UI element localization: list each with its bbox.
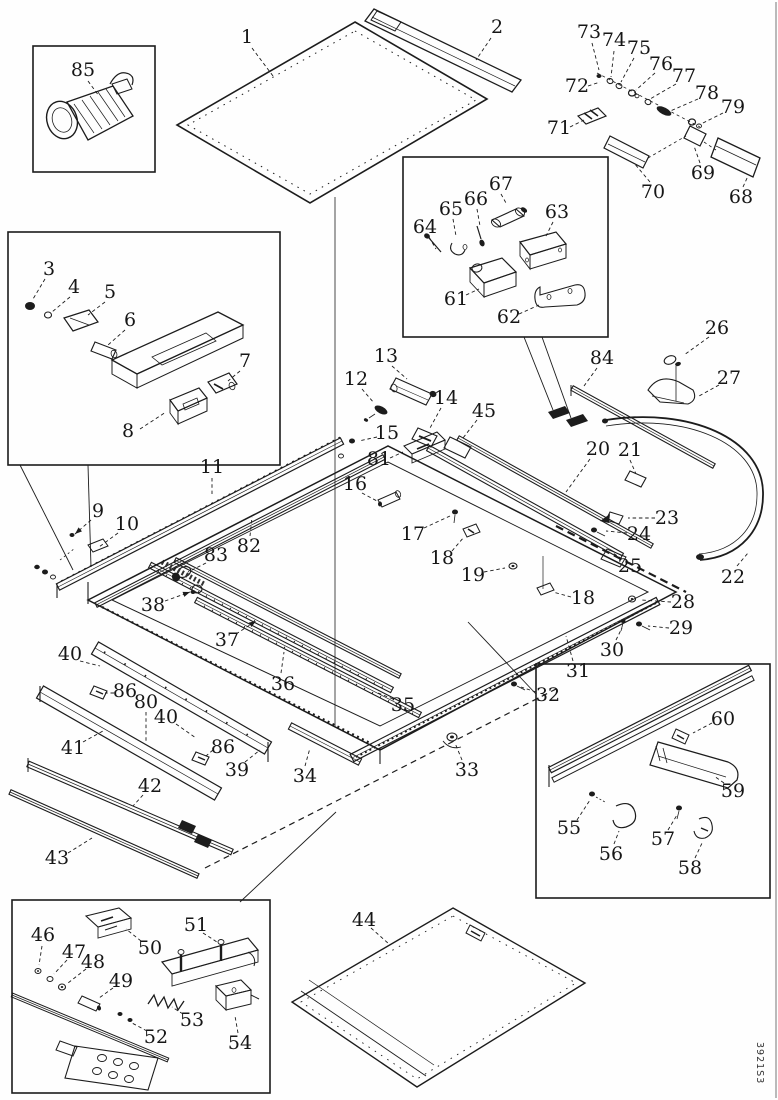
spring-12-line: [369, 414, 375, 418]
sunshade-band-1: [301, 991, 426, 1076]
cross-rail-a-midline: [428, 448, 622, 556]
leader-line-84: [584, 368, 597, 386]
part-label-28-44: 28: [671, 591, 695, 613]
part-label-3-15: 3: [43, 258, 55, 280]
deflector-blade-hatch: [656, 746, 667, 763]
part-label-27-51: 27: [717, 367, 741, 389]
washer-4: [45, 312, 52, 318]
spring-12: [373, 404, 389, 417]
part-label-6-18: 6: [124, 309, 136, 331]
clip-58-stripe: [701, 828, 708, 831]
bolt-57-line: [677, 811, 679, 819]
part-label-9-22: 9: [92, 500, 104, 522]
clip-86a-stripe: [96, 691, 103, 694]
part-label-55-76: 55: [557, 817, 581, 839]
sunshade-band-2: [309, 980, 434, 1065]
leader-line-69: [694, 146, 700, 163]
box-68: [711, 138, 760, 177]
fastener-link-2: [704, 142, 716, 150]
bolt-24-line: [597, 532, 605, 536]
bolt-57: [676, 806, 682, 811]
part-label-44-66: 44: [352, 909, 376, 931]
shade-track-36-midline: [196, 600, 420, 715]
cable-start-22: [602, 419, 608, 424]
part-label-16-61: 16: [343, 473, 367, 495]
cable-end-22: [696, 554, 704, 560]
washer-79b: [697, 124, 702, 128]
pin-66-shaft: [477, 226, 481, 239]
plate-62-hole2: [568, 289, 572, 294]
bracket-8-cap: [170, 400, 178, 424]
leader-line-60: [693, 723, 712, 733]
leader-line-29: [648, 626, 669, 628]
block-54-front: [226, 990, 251, 1010]
glass-panel-ticks: [188, 31, 476, 194]
screw-29: [636, 622, 642, 627]
part-label-42-36: 42: [138, 775, 162, 797]
leader-line-41: [83, 731, 103, 742]
leader-line-12: [362, 389, 374, 403]
leader-line-20: [566, 459, 590, 492]
part-label-26-50: 26: [705, 317, 729, 339]
part-label-7-19: 7: [239, 350, 251, 372]
bracket-8-front: [178, 398, 207, 424]
part-label-18-63: 18: [430, 547, 454, 569]
part-label-79-10: 79: [721, 96, 745, 118]
plate-hole-5: [109, 1072, 118, 1079]
part-label-83-25: 83: [204, 544, 228, 566]
clip-18a-stripe: [468, 529, 474, 533]
bracket-10: [88, 539, 108, 552]
bolt-9: [70, 533, 75, 537]
part-label-21-54: 21: [618, 439, 642, 461]
leader-line-45: [463, 420, 477, 438]
motor-hatch: [74, 89, 125, 133]
arm-51-roller1: [178, 950, 184, 955]
mount-clip-b: [566, 414, 588, 427]
spring-53: [148, 995, 184, 1010]
leader-line-78: [668, 99, 698, 112]
plate-62: [535, 285, 585, 308]
part-label-57-78: 57: [651, 828, 675, 850]
spring-12-tip: [363, 418, 368, 423]
sunshade-panel: [292, 908, 585, 1087]
plate-hole-4: [93, 1068, 102, 1075]
part-label-45-58: 45: [472, 400, 496, 422]
part-label-84-52: 84: [590, 347, 614, 369]
leader-line-43: [68, 838, 92, 853]
arm-51-roller2: [218, 940, 224, 945]
part-label-78-9: 78: [695, 82, 719, 104]
part-label-43-37: 43: [45, 847, 69, 869]
part-label-52-73: 52: [144, 1026, 168, 1048]
leader-line-71: [570, 120, 584, 127]
hook-56: [613, 804, 636, 828]
leader-line-19: [484, 568, 505, 572]
part-label-25-46: 25: [618, 555, 642, 577]
front-channel-34-midline: [290, 726, 360, 762]
clip-box-leader-2: [542, 337, 571, 418]
washer-19-dot: [512, 565, 515, 567]
deflector-box-leader: [468, 622, 536, 694]
part-label-13-55: 13: [374, 345, 398, 367]
rail-end-washer: [51, 575, 56, 579]
pin-49-tip: [96, 1005, 101, 1011]
leader-line-62: [519, 305, 539, 314]
washer-46-dot: [37, 970, 39, 972]
leader-line-79: [701, 113, 723, 124]
clip-65: [451, 243, 465, 255]
box-63-hole2: [559, 248, 562, 252]
part-label-14-57: 14: [434, 387, 458, 409]
leader-line-24: [606, 531, 627, 533]
leader-line-65: [453, 219, 456, 236]
tube-67-cap: [520, 206, 528, 214]
part-label-11-21: 11: [200, 456, 224, 478]
clip-58: [694, 817, 712, 838]
part-label-61-82: 61: [444, 288, 468, 310]
part-label-72-8: 72: [565, 75, 589, 97]
leader-line-75: [621, 58, 634, 82]
plate-hole-3: [130, 1063, 139, 1070]
part-label-68-14: 68: [729, 186, 753, 208]
part-label-58-79: 58: [678, 857, 702, 879]
motor-body: [67, 86, 133, 140]
part-label-48-69: 48: [81, 951, 105, 973]
part-label-12-56: 12: [344, 368, 368, 390]
rail-end-nut-b: [34, 565, 40, 569]
pin-66-head: [478, 239, 485, 247]
drip-rail-43-midline: [10, 792, 198, 876]
part-label-33-42: 33: [455, 759, 479, 781]
leader-line-18: [553, 592, 571, 597]
clip-60-stripe: [677, 735, 684, 739]
part-label-19-64: 19: [461, 564, 485, 586]
leader-line-54: [235, 1016, 238, 1033]
part-label-86-33: 86: [211, 736, 235, 758]
bracket-50-slot2: [105, 926, 117, 930]
part-label-85-2: 85: [71, 59, 95, 81]
part-label-5-17: 5: [104, 281, 116, 303]
leader-line-22: [737, 553, 748, 566]
part-label-15-59: 15: [375, 422, 399, 444]
bolt-55-dash: [596, 797, 605, 802]
part-label-65-86: 65: [439, 198, 463, 220]
part-label-73-3: 73: [577, 21, 601, 43]
bolt-32: [511, 682, 517, 687]
part-label-40-32: 40: [154, 706, 178, 728]
shade-track-38-midline: [175, 560, 400, 676]
block-54-side: [216, 986, 226, 1010]
guide-box-leader-1: [20, 465, 73, 570]
tube-67: [492, 209, 524, 227]
part-label-76-6: 76: [649, 53, 673, 75]
plate-hole-6: [125, 1076, 134, 1083]
part-label-75-5: 75: [627, 37, 651, 59]
leader-line-4: [52, 297, 70, 312]
leader-line-6: [108, 330, 125, 345]
box-63-side: [520, 242, 530, 269]
bracket-81-slot: [417, 444, 429, 449]
part-label-37-27: 37: [215, 629, 239, 651]
leader-line-34: [305, 748, 310, 766]
bolt-15: [349, 439, 355, 444]
pin-49: [78, 996, 100, 1011]
part-label-40-29: 40: [58, 643, 82, 665]
part-label-63-84: 63: [545, 201, 569, 223]
leader-line-36: [281, 652, 284, 673]
screw-52b: [128, 1018, 133, 1022]
nut-48-dot: [61, 986, 64, 988]
part-label-1-0: 1: [241, 26, 253, 48]
part-label-31-40: 31: [566, 660, 590, 682]
part-label-53-74: 53: [180, 1009, 204, 1031]
guide-rail-cap: [112, 360, 137, 388]
bracket-7-stripe: [214, 384, 223, 389]
leader-line-2: [476, 38, 491, 60]
part-label-69-13: 69: [691, 162, 715, 184]
frame-box-leader: [240, 812, 336, 902]
part-label-30-43: 30: [600, 639, 624, 661]
leader-line-40: [80, 661, 100, 666]
box-63-hole1: [526, 258, 529, 262]
leader-line-17: [424, 516, 450, 528]
deflector-blade-inner: [658, 756, 726, 777]
leader-line-70: [634, 163, 650, 182]
motor-foot: [112, 79, 132, 94]
leader-arrow-38: [183, 592, 190, 597]
block-54-hole: [232, 988, 236, 993]
rail-end-nut-a: [42, 570, 48, 575]
part-label-54-75: 54: [228, 1032, 252, 1054]
part-label-51-72: 51: [184, 914, 208, 936]
part-label-34-38: 34: [293, 765, 317, 787]
fastener-link-1: [648, 136, 686, 158]
plate-hole-1: [98, 1055, 107, 1062]
sunroof-exploded-view-diagram: 1285737475767772787971706968345678119108…: [0, 0, 778, 1100]
side-molding-bracket: [371, 11, 401, 31]
leader-line-82: [250, 517, 252, 536]
bracket-69: [684, 126, 706, 146]
clip-86b-stripe: [198, 757, 205, 760]
clamp-26-inner: [674, 361, 681, 367]
part-label-41-34: 41: [61, 737, 85, 759]
part-label-2-1: 2: [491, 16, 503, 38]
screw-52a: [118, 1012, 123, 1016]
part-label-46-67: 46: [31, 924, 55, 946]
pin-16-tip: [378, 502, 382, 507]
leader-line-14: [430, 408, 441, 428]
nut-28-dot: [631, 598, 634, 600]
part-label-39-35: 39: [225, 759, 249, 781]
arm-51-top: [162, 938, 258, 974]
block-61-front: [484, 272, 516, 297]
part-label-66-87: 66: [464, 188, 488, 210]
leader-line-13: [392, 366, 407, 379]
screw-64-shaft: [429, 238, 441, 252]
leader-line-10: [99, 533, 118, 547]
spacer-76b: [635, 94, 639, 98]
bolt-24: [591, 528, 597, 533]
leader-line-8: [140, 412, 166, 429]
leader-line-66: [477, 209, 480, 226]
bar-70: [604, 136, 649, 168]
washer-47: [47, 977, 53, 982]
link-13-inner: [396, 386, 428, 400]
part-label-17-62: 17: [401, 523, 425, 545]
clip-71-stripe: [584, 110, 598, 119]
part-label-35-39: 35: [391, 694, 415, 716]
pin-16-eye: [394, 490, 401, 498]
clip-65-end: [463, 245, 467, 250]
leader-line-40: [176, 724, 196, 738]
clip-box-leader-1: [524, 337, 553, 410]
leader-line-72: [588, 82, 600, 86]
leader-line-31: [566, 636, 573, 661]
mount-clip-a: [548, 406, 570, 419]
part-label-10-23: 10: [115, 513, 139, 535]
shade-track-37-midline: [150, 565, 392, 690]
part-label-67-88: 67: [489, 173, 513, 195]
screw-29-line: [642, 626, 650, 630]
part-label-18-65: 18: [571, 587, 595, 609]
part-label-4-16: 4: [68, 276, 80, 298]
leader-line-76: [636, 73, 655, 90]
bracket-50-slot1: [101, 917, 113, 921]
part-label-29-45: 29: [669, 617, 693, 639]
part-label-64-85: 64: [413, 216, 437, 238]
clip-18b: [537, 583, 554, 595]
part-label-38-26: 38: [141, 594, 165, 616]
block-5: [64, 310, 98, 331]
washer-74: [606, 78, 613, 85]
leader-line-73: [592, 43, 599, 70]
washer-15: [339, 454, 344, 458]
motor-cap-outer: [42, 97, 82, 142]
leader-line-58: [695, 841, 703, 858]
leader-line-33: [455, 743, 462, 760]
leader-line-46: [39, 946, 42, 965]
clamp-26-outer: [663, 354, 677, 366]
part-label-24-48: 24: [627, 523, 651, 545]
assembly-axis-dash: [205, 688, 558, 868]
part-label-32-41: 32: [536, 684, 560, 706]
block-5-inner: [70, 318, 89, 325]
plate-62-hole1: [547, 295, 551, 300]
guide-box-leader-2: [88, 465, 91, 567]
right-rail-31-hatch: [356, 603, 656, 757]
screw-73: [597, 74, 602, 78]
washer-75: [615, 83, 622, 90]
leader-line-74: [611, 51, 614, 77]
block-54-bolt: [251, 995, 259, 999]
part-label-82-24: 82: [237, 535, 261, 557]
drawing-number: 3921S3: [754, 1042, 765, 1084]
part-label-60-81: 60: [711, 708, 735, 730]
bolt-55: [589, 792, 595, 797]
part-label-49-70: 49: [109, 970, 133, 992]
bolt-17: [452, 510, 458, 515]
washer-79: [689, 119, 696, 125]
part-label-23-47: 23: [655, 507, 679, 529]
part-label-56-77: 56: [599, 843, 623, 865]
left-rail-82-midline: [96, 457, 384, 605]
leader-line-64: [429, 237, 436, 249]
part-label-70-12: 70: [641, 181, 665, 203]
parts-diagram-page: 1285737475767772787971706968345678119108…: [0, 0, 778, 1100]
part-label-71-11: 71: [547, 117, 571, 139]
sunshade-ticks: [301, 916, 576, 1079]
part-label-77-7: 77: [672, 65, 696, 87]
leader-line-67: [501, 194, 506, 203]
part-label-36-28: 36: [271, 673, 295, 695]
part-label-74-4: 74: [602, 29, 626, 51]
glass-panel: [177, 22, 487, 203]
part-label-8-20: 8: [122, 420, 134, 442]
part-label-22-49: 22: [721, 566, 745, 588]
nut-3: [25, 302, 35, 310]
part-label-62-83: 62: [497, 306, 521, 328]
part-label-20-53: 20: [586, 438, 610, 460]
plate-hole-2: [114, 1059, 123, 1066]
clip-71: [578, 108, 606, 124]
leader-line-26: [684, 337, 709, 355]
spring-78: [655, 104, 672, 118]
leader-line-3: [33, 279, 45, 299]
part-label-59-80: 59: [721, 780, 745, 802]
block-61-top: [470, 258, 516, 283]
shade-track-36-perf: [204, 606, 414, 714]
grommet-33-dot: [450, 736, 454, 739]
part-label-50-71: 50: [138, 937, 162, 959]
part-label-81-60: 81: [367, 448, 391, 470]
washer-77: [644, 99, 651, 106]
sunshade-clip-stripe: [471, 931, 480, 936]
bolt-17-line: [454, 515, 455, 523]
bolt-30: [621, 619, 626, 623]
